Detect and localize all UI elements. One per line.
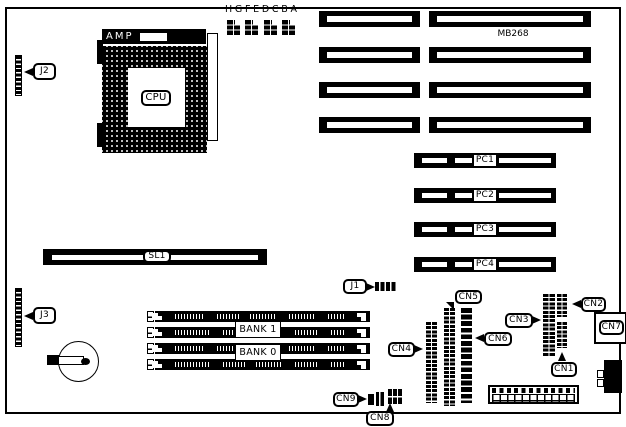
pci-slot-label: PC2 <box>473 189 497 202</box>
j2-header <box>15 55 22 96</box>
socket-tab-bottom <box>97 123 103 147</box>
cn5-header <box>444 308 455 406</box>
cn4-header <box>426 322 437 403</box>
cn2-label: CN2 <box>581 297 606 312</box>
isa-slot-2-right <box>429 47 591 63</box>
jumper-block-ba <box>282 20 295 35</box>
jumper-letter-c: C <box>272 5 279 15</box>
j1-pointer <box>366 283 375 291</box>
cn7-label: CN7 <box>599 320 624 335</box>
jumper-letters-row: H G F E D C B A <box>225 5 297 15</box>
cn6-label: CN6 <box>484 332 512 346</box>
cn5-label: CN5 <box>455 290 482 304</box>
cn8-header <box>388 389 402 404</box>
isa-slot-4-right <box>429 117 591 133</box>
jumper-letter-e: E <box>253 5 259 15</box>
jumper-letter-a: A <box>290 5 297 15</box>
motherboard-diagram: AMP CPU H G F E D C B A MB268 PC1 PC2 PC… <box>0 0 626 427</box>
cn5-pointer <box>446 302 454 310</box>
cn8-label: CN8 <box>366 411 394 426</box>
jumper-block-fe <box>245 20 258 35</box>
pci-slot-pc4: PC4 <box>414 257 556 272</box>
pci-slot-pc3: PC3 <box>414 222 556 237</box>
cn3-label: CN3 <box>505 313 533 328</box>
pci-slot-label: PC3 <box>473 223 497 236</box>
jumper-letter-b: B <box>281 5 288 15</box>
sl1-slot: SL1 <box>43 249 267 265</box>
cn1-label: CN1 <box>551 362 577 377</box>
socket-chip-mark <box>140 33 167 41</box>
jumper-letter-f: F <box>245 5 250 15</box>
cn4-pointer <box>414 345 423 353</box>
isa-slot-3-right <box>429 82 591 98</box>
cpu-socket-top-bar: AMP <box>102 29 206 44</box>
board-model-label: MB268 <box>487 29 539 39</box>
jumper-letter-h: H <box>225 5 232 15</box>
j2-pointer <box>24 68 33 76</box>
cn1-header <box>557 322 567 348</box>
j3-header <box>15 288 22 347</box>
amp-brand-label: AMP <box>106 32 134 42</box>
cn9-pointer <box>358 395 367 403</box>
jumper-letter-d: D <box>262 5 269 15</box>
j1-header <box>375 282 396 291</box>
cn9-label: CN9 <box>333 392 359 407</box>
din-notch-top <box>597 370 604 378</box>
pci-slot-pc2: PC2 <box>414 188 556 203</box>
bank0-label: BANK 0 <box>235 344 281 361</box>
isa-slot-2-left <box>319 47 420 63</box>
cn6-connector <box>461 308 472 403</box>
sl1-label: SL1 <box>143 250 171 263</box>
j2-label: J2 <box>33 63 56 80</box>
bank1-label: BANK 1 <box>235 321 281 338</box>
cn6-pointer <box>475 334 484 342</box>
cn2-pointer <box>572 300 581 308</box>
jumper-block-dc <box>264 20 277 35</box>
cn9-connector <box>368 394 374 405</box>
j3-pointer <box>24 312 33 320</box>
din-notch-bottom <box>597 379 604 387</box>
jumper-block-hg <box>227 20 240 35</box>
cpu-label: CPU <box>141 90 171 106</box>
keyboard-din-connector <box>604 360 622 393</box>
j3-label: J3 <box>33 307 56 324</box>
cn9-connector-body <box>376 392 384 406</box>
cn2-header <box>557 294 567 317</box>
pci-slot-label: PC1 <box>473 154 497 167</box>
isa-slot-1-right <box>429 11 591 27</box>
jumper-letter-g: G <box>235 5 242 15</box>
pci-slot-pc1: PC1 <box>414 153 556 168</box>
battery-tip-icon <box>81 358 90 365</box>
socket-tab-top <box>97 40 103 64</box>
isa-slot-3-left <box>319 82 420 98</box>
cn4-label: CN4 <box>388 342 415 357</box>
socket-lever <box>207 33 218 141</box>
pci-slot-label: PC4 <box>473 258 497 271</box>
cn3-header <box>543 294 555 357</box>
power-connector <box>488 385 579 404</box>
j1-label: J1 <box>343 279 367 294</box>
isa-slot-1-left <box>319 11 420 27</box>
isa-slot-4-left <box>319 117 420 133</box>
cn1-pointer <box>558 352 566 361</box>
cn3-pointer <box>532 316 541 324</box>
